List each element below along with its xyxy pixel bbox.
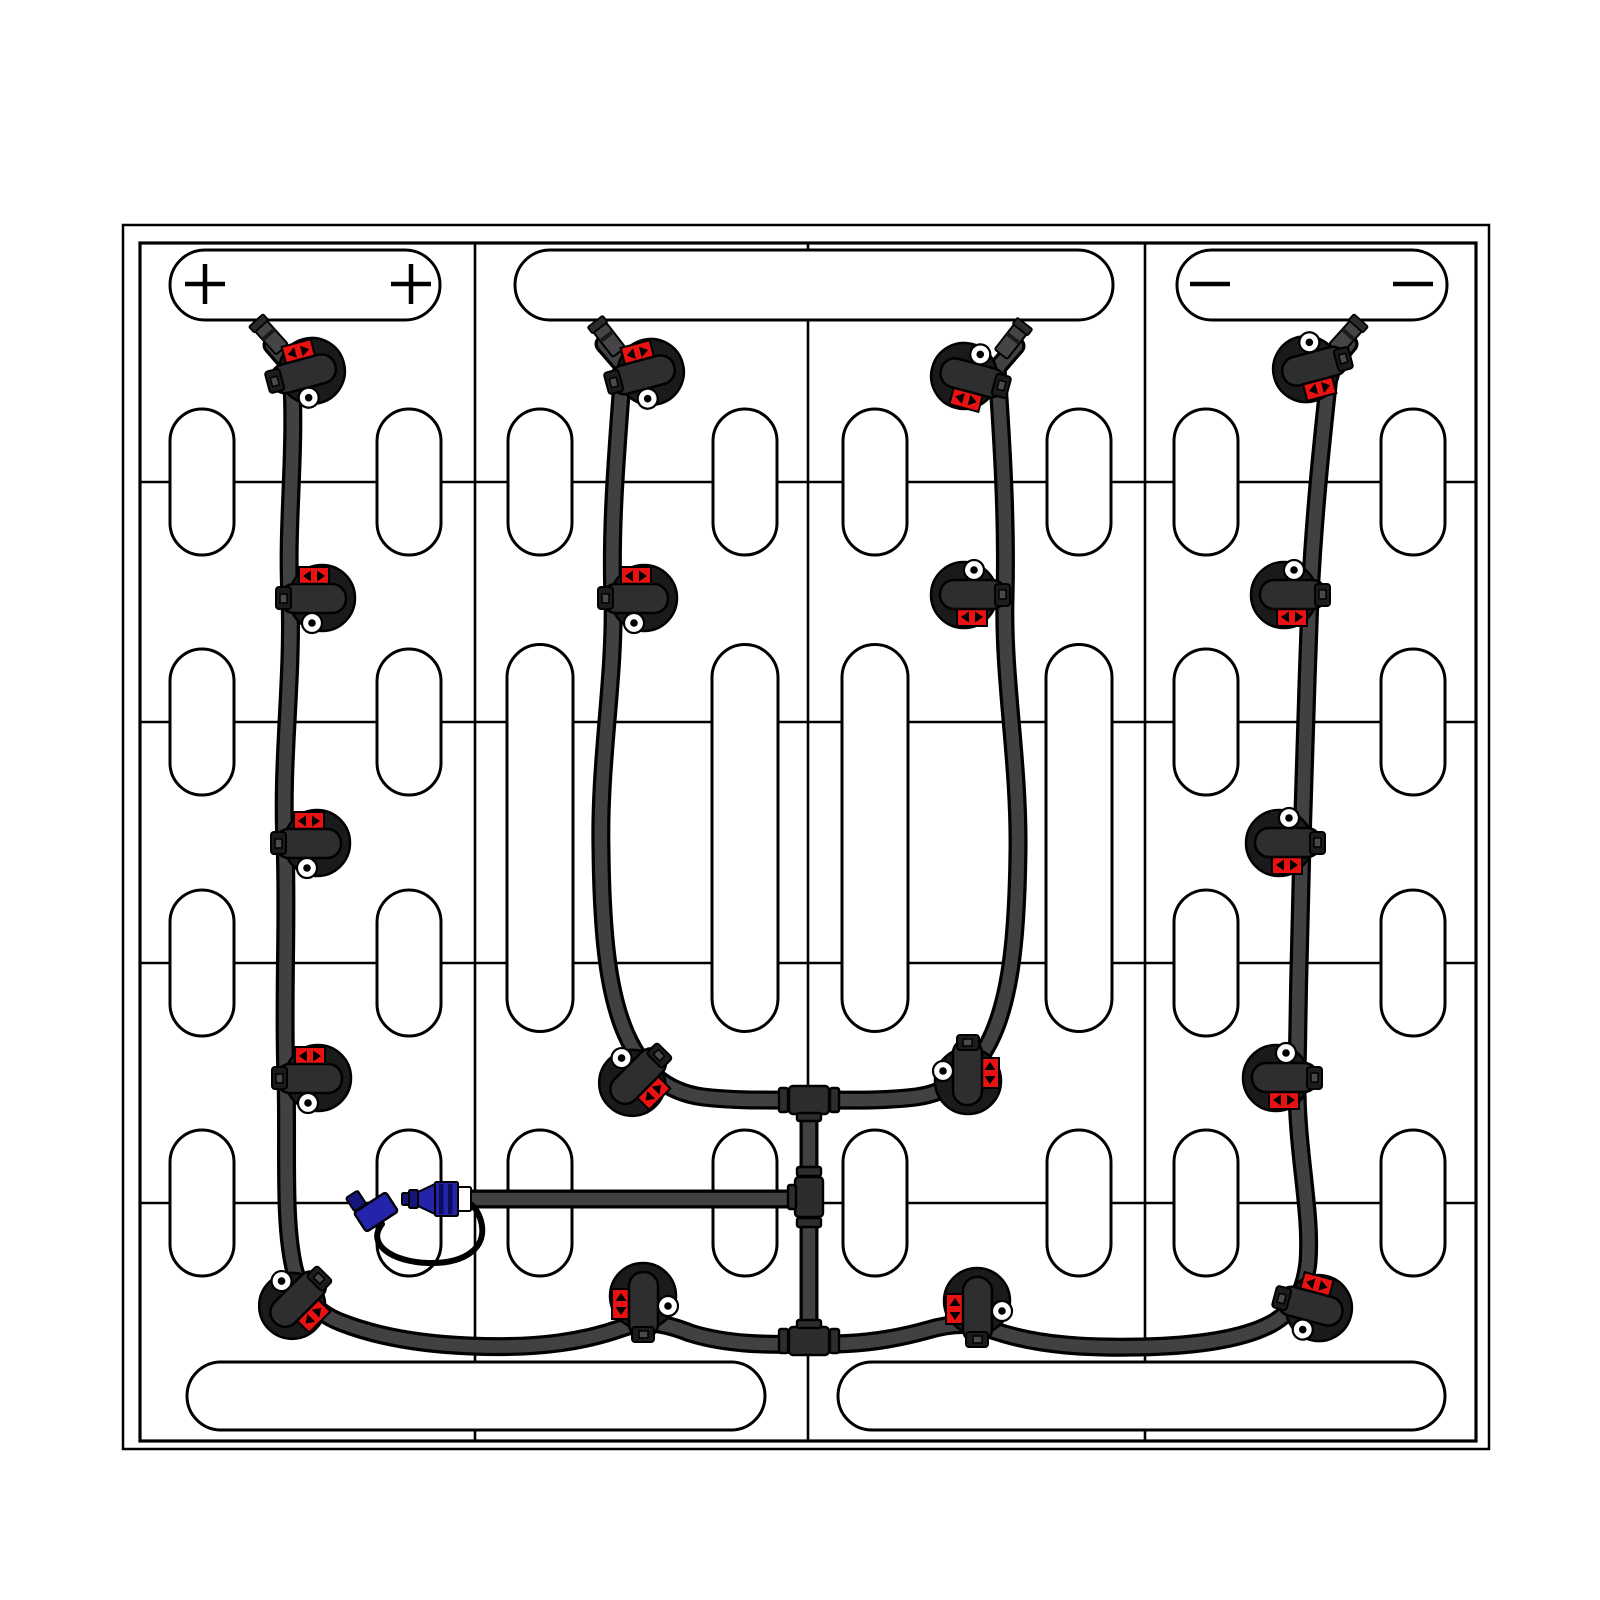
battery-watering-diagram [0,0,1600,1600]
clamp-slot [609,377,618,388]
vent-pill [842,645,908,1032]
vent-eyelet-center [303,864,311,872]
clamp-slot [973,1336,982,1343]
vent-pill [712,645,778,1032]
vent-eyelet-center [1290,566,1298,574]
terminal-pill-positive [170,250,440,320]
clamp-slot [1277,1293,1286,1304]
coupler-segment [435,1182,458,1216]
terminal-pill-blank [515,250,1113,320]
vent-pill [377,409,441,555]
vent-pill [1174,649,1238,795]
clamp-slot [963,1039,972,1046]
vent-pill [170,1130,234,1276]
vent-eyelet-center [308,619,316,627]
coupler-segment [409,1190,418,1208]
vent-pill [377,890,441,1036]
coupler-stripe [439,1184,444,1214]
vent-pill [1381,409,1445,555]
bottom-plate-pill [838,1362,1445,1430]
clamp-slot [275,839,282,848]
coupler-segment [402,1193,409,1205]
clamp-slot [602,594,609,603]
clamp-slot [276,1074,283,1083]
vent-eyelet-center [939,1067,947,1075]
vent-pill [843,1130,907,1276]
vent-pill [713,409,777,555]
diagram-canvas [0,0,1600,1600]
vent-pill [170,890,234,1036]
clamp-slot [270,376,279,387]
vent-pill [1047,409,1111,555]
clamp-slot [999,590,1006,599]
vent-pill [1174,1130,1238,1276]
vent-eyelet-center [1285,814,1293,822]
vent-eyelet-center [1282,1049,1290,1057]
clamp-slot [997,380,1006,391]
terminal-pill-negative [1177,250,1447,320]
vent-pill [508,409,572,555]
vent-eyelet-center [970,566,978,574]
vent-pill [1381,890,1445,1036]
vent-eyelet-center [304,1099,312,1107]
vent-pill [1174,890,1238,1036]
bottom-plate-pill [187,1362,765,1430]
vent-pill [843,409,907,555]
clamp-slot [280,594,287,603]
vent-pill [1047,1130,1111,1276]
coupler-stripe [448,1184,453,1214]
vent-pill [1046,645,1112,1032]
vent-pill [1381,1130,1445,1276]
vent-eyelet-center [664,1302,672,1310]
coupler-segment [458,1187,471,1211]
vent-pill [170,409,234,555]
vent-pill [1174,409,1238,555]
clamp-slot [639,1331,648,1338]
clamp-slot [1319,590,1326,599]
vent-pill [170,649,234,795]
vent-pill [377,649,441,795]
vent-pill [507,645,573,1032]
clamp-slot [1339,353,1348,364]
clamp-slot [1311,1073,1318,1082]
vent-pill [1381,649,1445,795]
clamp-slot [1314,838,1321,847]
vent-eyelet-center [998,1307,1006,1315]
vent-eyelet-center [630,619,638,627]
